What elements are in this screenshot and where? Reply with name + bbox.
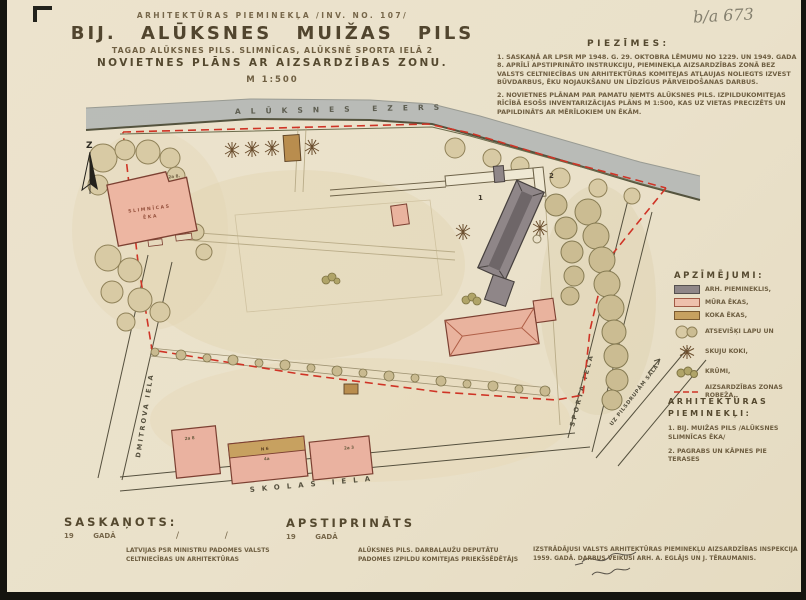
subtitle-current-use: TAGAD ALŪKSNES PILS. SLIMNĪCAS, ALŪKSNĒ … xyxy=(70,46,475,55)
approved-label: APSTIPRINĀTS xyxy=(286,516,415,530)
legend-heading: APZĪMĒJUMI: xyxy=(674,271,804,281)
legend-item-monument: ARH. PIEMINEKLIS, xyxy=(674,285,804,294)
marker-palace: 1 xyxy=(478,194,483,202)
monuments-heading: ARHITEKTŪRAS PIEMINEKĻI: xyxy=(668,396,786,420)
masonry-building-b1: 2a 8 xyxy=(172,426,221,478)
note-1: 1. SASKAŅĀ AR LPSR MP 1948. G. 29. OKTOB… xyxy=(497,53,802,87)
deciduous-tree-icon xyxy=(674,324,700,340)
signature-slash-line: / / xyxy=(176,531,228,541)
note-2: 2. NOVIETNES PLĀNAM PAR PAMATU ŅEMTS ALŪ… xyxy=(497,91,802,116)
monument-swatch xyxy=(674,285,700,294)
legend-item-wooden: KOKA ĒKAS, xyxy=(674,311,804,320)
page-title: BIJ. ALŪKSNES MUIŽAS PILS xyxy=(70,23,475,44)
legend-item-masonry: MŪRA ĒKAS, xyxy=(674,298,804,307)
credit-block: IZSTRĀDĀJUSI VALSTS ARHITEKTŪRAS PIEMINE… xyxy=(533,546,805,563)
handwritten-archive-number: b/a 673 xyxy=(693,4,755,26)
registration-corner-mark xyxy=(33,6,52,22)
building-b3-label: 2a 3 xyxy=(344,445,355,451)
notes-block: PIEZĪMES: 1. SASKAŅĀ AR LPSR MP 1948. G.… xyxy=(497,39,802,116)
well-circle xyxy=(533,235,541,243)
building-b2-label-a: N 6 xyxy=(261,446,269,452)
org-left: LATVIJAS PSR MINISTRU PADOMES VALSTS CEL… xyxy=(126,547,270,564)
monument-item-1: 1. BIJ. MUIŽAS PILS /ALŪKSNES SLIMNĪCAS … xyxy=(668,425,800,443)
approved-year: 19 GADĀ xyxy=(286,533,415,541)
legend-item-deciduous: ATSEVIŠĶI LAPU UN xyxy=(674,324,804,340)
org-center-line1: ALŪKSNES PILS. DARBAĻAUŽU DEPUTĀTU xyxy=(358,547,518,556)
conifer-tree-icon xyxy=(674,344,700,360)
legend-block: APZĪMĒJUMI: ARH. PIEMINEKLIS, MŪRA ĒKAS,… xyxy=(674,271,804,400)
org-center: ALŪKSNES PILS. DARBAĻAUŽU DEPUTĀTU PADOM… xyxy=(358,547,518,564)
scan-edge-bottom xyxy=(0,592,806,600)
agreed-year: 19 GADĀ xyxy=(64,532,177,540)
subtitle-plan-type: NOVIETNES PLĀNS AR AIZSARDZĪBAS ZONU. xyxy=(70,57,475,69)
document-sheet: ALŪKSNES EZERS DMITROVA IELA SKOLAS IELA… xyxy=(0,0,806,600)
masonry-building-b2: N 6 4a xyxy=(228,436,308,484)
building-b2-label-b: 4a xyxy=(264,456,270,462)
map-scale: M 1:500 xyxy=(70,75,475,85)
building-b1-label: 2a 8 xyxy=(184,435,195,441)
org-left-line2: CELTNIECĪBAS UN ARHITEKTŪRAS xyxy=(126,556,270,565)
monument-inventory-line: ARHITEKTŪRAS PIEMINEKĻA /INV. NO. 107/ xyxy=(70,11,475,20)
masonry-building-mid xyxy=(444,298,559,356)
scan-edge-left xyxy=(0,0,7,600)
wood-swatch xyxy=(674,311,700,320)
marker-cellar: 2 xyxy=(549,172,554,180)
title-block: ARHITEKTŪRAS PIEMINEKĻA /INV. NO. 107/ B… xyxy=(70,11,475,85)
org-center-line2: PADOMES IZPILDU KOMITEJAS PRIEKŠSĒDĒTĀJS xyxy=(358,556,518,565)
legend-item-conifer: SKUJU KOKI, xyxy=(674,344,804,360)
legend-item-shrubs: KRŪMI, xyxy=(674,364,804,380)
notes-heading: PIEZĪMES: xyxy=(587,39,802,49)
monuments-block: ARHITEKTŪRAS PIEMINEKĻI: 1. BIJ. MUIŽAS … xyxy=(668,396,800,465)
credit-line2: 1959. GADĀ. DARBUS VEIKUŠI ARH. A. EGLĀJ… xyxy=(533,555,805,564)
scan-edge-right xyxy=(801,0,806,600)
north-label: Z xyxy=(86,141,93,151)
org-left-line1: LATVIJAS PSR MINISTRU PADOMES VALSTS xyxy=(126,547,270,556)
masonry-building-b3: 2a 3 xyxy=(309,436,373,480)
credit-line1: IZSTRĀDĀJUSI VALSTS ARHITEKTŪRAS PIEMINE… xyxy=(533,546,805,555)
masonry-swatch xyxy=(674,298,700,307)
agreed-block: SASKAŅOTS: 19 GADĀ xyxy=(64,515,177,540)
shrub-icon xyxy=(674,364,700,380)
approved-block: APSTIPRINĀTS 19 GADĀ xyxy=(286,516,415,541)
agreed-label: SASKAŅOTS: xyxy=(64,515,177,529)
monument-item-2: 2. PAGRABS UN KĀPNES PIE TERASES xyxy=(668,448,800,466)
